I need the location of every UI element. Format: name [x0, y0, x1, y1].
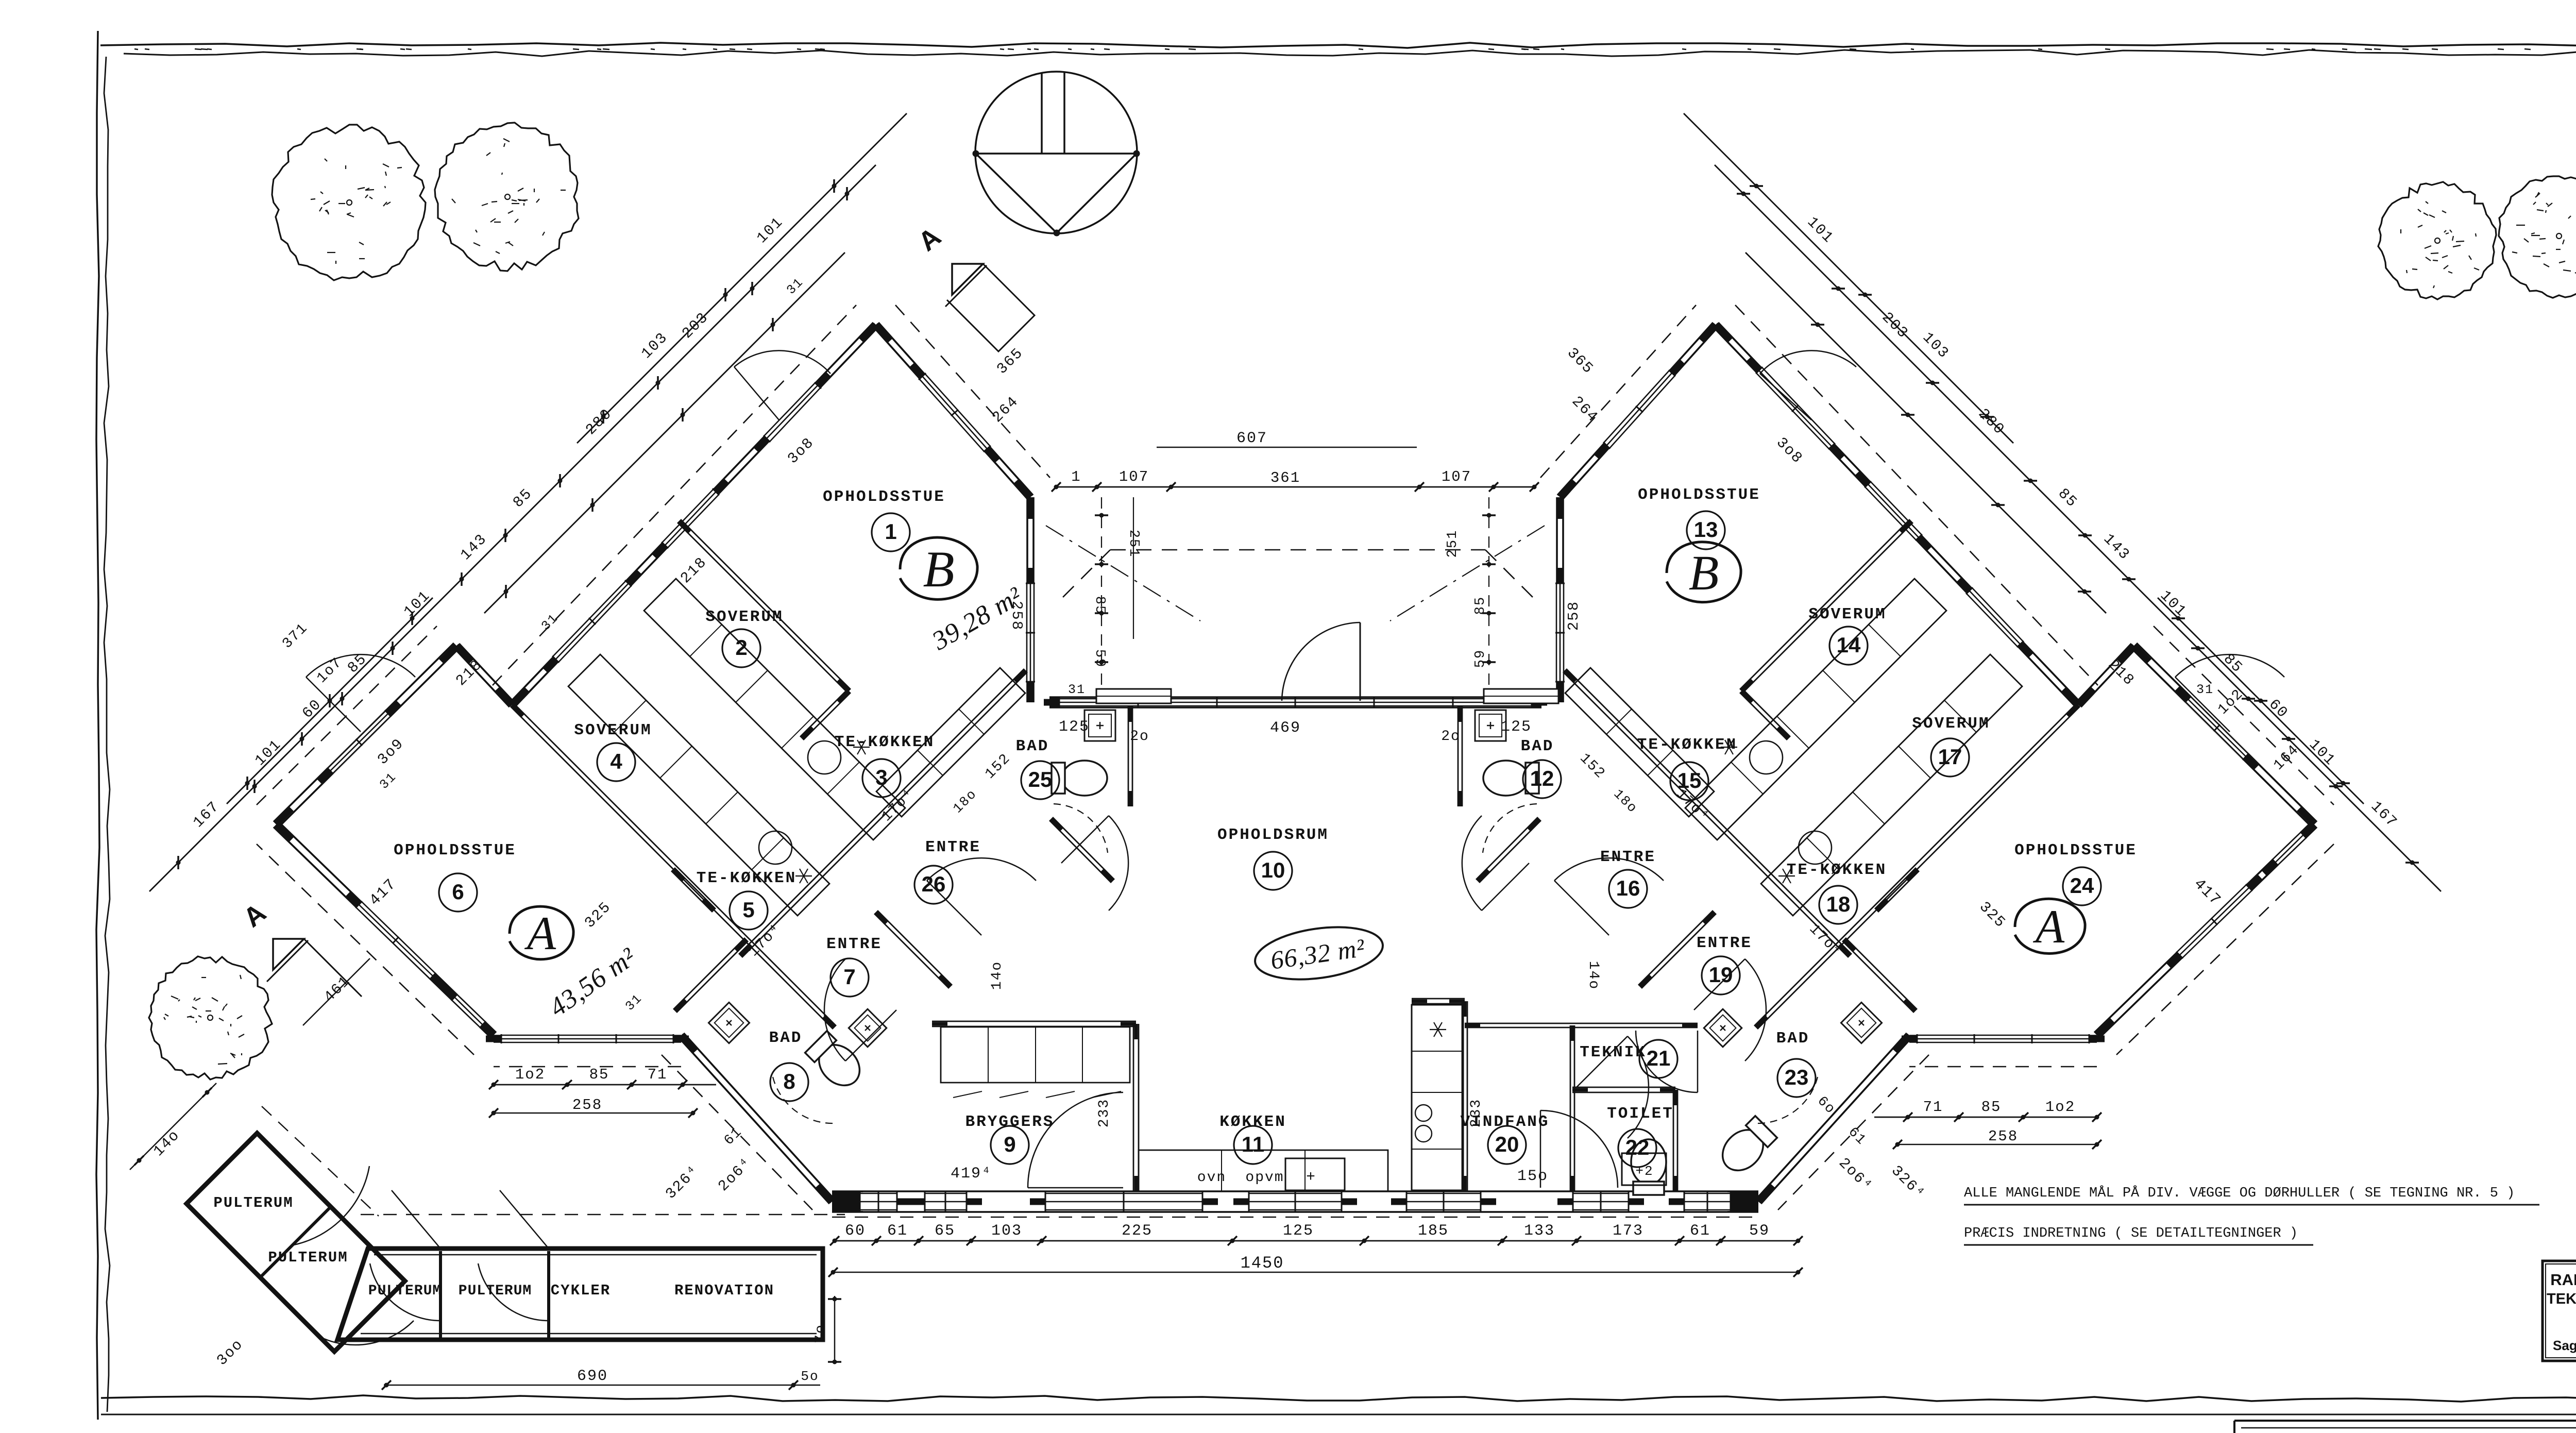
svg-text:133: 133 [1524, 1222, 1555, 1240]
svg-text:Sags nr.:: Sags nr.: [2553, 1338, 2576, 1353]
svg-text:25: 25 [1028, 767, 1053, 791]
svg-text:9: 9 [1004, 1132, 1015, 1156]
svg-text:ENTRE: ENTRE [1697, 934, 1752, 952]
svg-text:61: 61 [887, 1222, 908, 1240]
svg-text:20: 20 [1495, 1132, 1519, 1156]
svg-text:85: 85 [1473, 596, 1488, 615]
svg-text:31: 31 [2196, 682, 2214, 697]
svg-text:607: 607 [1236, 430, 1267, 447]
svg-text:173: 173 [1613, 1222, 1643, 1240]
svg-text:14o: 14o [1585, 961, 1601, 990]
svg-text:59: 59 [1092, 649, 1107, 668]
svg-text:TEKNISK FORVALTNING: TEKNISK FORVALTNING [2547, 1291, 2576, 1307]
svg-text:ENTRE: ENTRE [925, 838, 981, 856]
svg-text:23: 23 [1785, 1065, 1809, 1089]
svg-text:2: 2 [735, 635, 747, 660]
svg-text:TE-KØKKEN: TE-KØKKEN [1637, 736, 1737, 754]
svg-text:ALLE MANGLENDE MÅL PÅ DIV. VÆG: ALLE MANGLENDE MÅL PÅ DIV. VÆGGE OG DØRH… [1964, 1185, 2515, 1201]
svg-text:107: 107 [1119, 468, 1149, 485]
svg-text:1o2: 1o2 [515, 1066, 545, 1083]
svg-text:7: 7 [843, 965, 855, 989]
svg-text:85: 85 [1981, 1099, 2002, 1116]
svg-text:4: 4 [610, 749, 622, 773]
svg-text:185: 185 [1418, 1222, 1449, 1240]
svg-text:233: 233 [1096, 1099, 1112, 1127]
svg-text:6: 6 [452, 880, 464, 904]
svg-text:690: 690 [577, 1368, 608, 1385]
svg-text:+: + [1306, 1169, 1316, 1186]
svg-text:61: 61 [1690, 1222, 1710, 1240]
svg-text:24: 24 [2070, 873, 2094, 898]
svg-text:OPHOLDSSTUE: OPHOLDSSTUE [823, 488, 945, 506]
svg-text:14: 14 [1837, 633, 1861, 657]
svg-text:RENOVATION: RENOVATION [674, 1282, 774, 1299]
svg-text:1450: 1450 [1241, 1254, 1284, 1273]
svg-text:258: 258 [1988, 1128, 2018, 1145]
svg-text:1o2: 1o2 [2045, 1099, 2075, 1116]
svg-text:85: 85 [589, 1066, 609, 1083]
svg-text:TE-KØKKEN: TE-KØKKEN [835, 733, 935, 751]
svg-text:15o: 15o [1517, 1168, 1548, 1185]
svg-text:85: 85 [1092, 596, 1107, 615]
svg-text:125: 125 [1059, 718, 1090, 736]
svg-text:65: 65 [935, 1222, 955, 1240]
svg-text:225: 225 [1122, 1222, 1153, 1240]
svg-text:233: 233 [1468, 1099, 1484, 1127]
svg-text:1: 1 [885, 519, 896, 544]
svg-text:BRYGGERS: BRYGGERS [965, 1113, 1055, 1131]
svg-text:OPHOLDSSTUE: OPHOLDSSTUE [1638, 486, 1760, 504]
svg-text:OPHOLDSSTUE: OPHOLDSSTUE [2014, 841, 2137, 859]
svg-text:361: 361 [1270, 469, 1300, 486]
svg-text:60: 60 [845, 1222, 866, 1240]
svg-text:2o: 2o [1130, 729, 1149, 745]
svg-text:BAD: BAD [1521, 737, 1554, 755]
svg-text:19: 19 [1709, 963, 1733, 987]
svg-text:PRÆCIS INDRETNING ( SE DETAILT: PRÆCIS INDRETNING ( SE DETAILTEGNINGER ) [1964, 1226, 2298, 1241]
svg-text:251: 251 [1445, 530, 1461, 558]
svg-text:21: 21 [1647, 1046, 1671, 1070]
svg-text:26: 26 [922, 872, 946, 896]
svg-text:BAD: BAD [1776, 1030, 1810, 1048]
svg-text:PULTERUM: PULTERUM [268, 1249, 348, 1266]
svg-text:10: 10 [1261, 858, 1285, 882]
svg-text:103: 103 [991, 1222, 1022, 1240]
svg-text:12: 12 [1530, 766, 1554, 790]
svg-text:KØKKEN: KØKKEN [1219, 1113, 1286, 1131]
svg-text:opvm: opvm [1245, 1170, 1284, 1186]
svg-text:258: 258 [572, 1097, 602, 1114]
svg-text:SOVERUM: SOVERUM [1912, 715, 1990, 733]
svg-text:258: 258 [1008, 601, 1025, 631]
svg-text:SOVERUM: SOVERUM [705, 608, 783, 626]
svg-text:3: 3 [875, 765, 887, 789]
svg-text:11: 11 [1242, 1132, 1264, 1156]
svg-text:31: 31 [1068, 682, 1086, 697]
svg-text:TE-KØKKEN: TE-KØKKEN [697, 869, 796, 887]
svg-text:BAD: BAD [769, 1029, 803, 1047]
svg-text:RANDERS KOMMUNE: RANDERS KOMMUNE [2550, 1271, 2576, 1289]
svg-text:469: 469 [1270, 719, 1301, 737]
svg-text:258: 258 [1565, 601, 1582, 631]
svg-text:5o: 5o [801, 1369, 819, 1384]
svg-text:B: B [923, 541, 954, 598]
svg-text:BAD: BAD [1016, 737, 1049, 755]
svg-text:TEKNIK: TEKNIK [1580, 1043, 1647, 1061]
svg-text:107: 107 [1442, 468, 1471, 485]
svg-text:SOVERUM: SOVERUM [574, 721, 652, 739]
svg-text:419⁴: 419⁴ [951, 1165, 992, 1183]
svg-text:14o: 14o [989, 961, 1005, 990]
svg-text:PULTERUM: PULTERUM [213, 1194, 293, 1211]
svg-text:2o: 2o [1441, 729, 1461, 745]
svg-text:71: 71 [648, 1066, 668, 1083]
svg-text:125: 125 [1501, 718, 1532, 736]
svg-text:8: 8 [783, 1069, 795, 1093]
svg-text:125: 125 [1283, 1222, 1314, 1240]
svg-text:OPHOLDSSTUE: OPHOLDSSTUE [394, 841, 516, 859]
svg-text:71: 71 [1923, 1099, 1943, 1116]
svg-text:CYKLER: CYKLER [551, 1282, 611, 1299]
svg-text:1: 1 [1071, 468, 1081, 485]
svg-text:ENTRE: ENTRE [826, 935, 882, 953]
svg-text:59: 59 [1473, 649, 1488, 668]
svg-text:PULTERUM: PULTERUM [368, 1283, 442, 1299]
svg-text:16: 16 [1616, 876, 1640, 900]
svg-text:OPHOLDSRUM: OPHOLDSRUM [1217, 826, 1329, 844]
svg-text:TE-KØKKEN: TE-KØKKEN [1787, 861, 1887, 879]
svg-text:18: 18 [1826, 892, 1851, 916]
svg-text:ENTRE: ENTRE [1600, 848, 1656, 866]
svg-text:SOVERUM: SOVERUM [1808, 605, 1886, 623]
svg-text:A: A [524, 907, 556, 959]
svg-text:5: 5 [742, 898, 754, 922]
svg-text:59: 59 [1749, 1222, 1770, 1240]
svg-text:TOILET: TOILET [1607, 1105, 1674, 1123]
svg-text:22: 22 [1625, 1135, 1650, 1159]
svg-text:A: A [2032, 900, 2065, 953]
svg-text:13: 13 [1694, 517, 1718, 542]
svg-text:ovn: ovn [1197, 1170, 1226, 1186]
svg-text:B: B [1689, 545, 1719, 600]
svg-text:17: 17 [1938, 745, 1962, 769]
